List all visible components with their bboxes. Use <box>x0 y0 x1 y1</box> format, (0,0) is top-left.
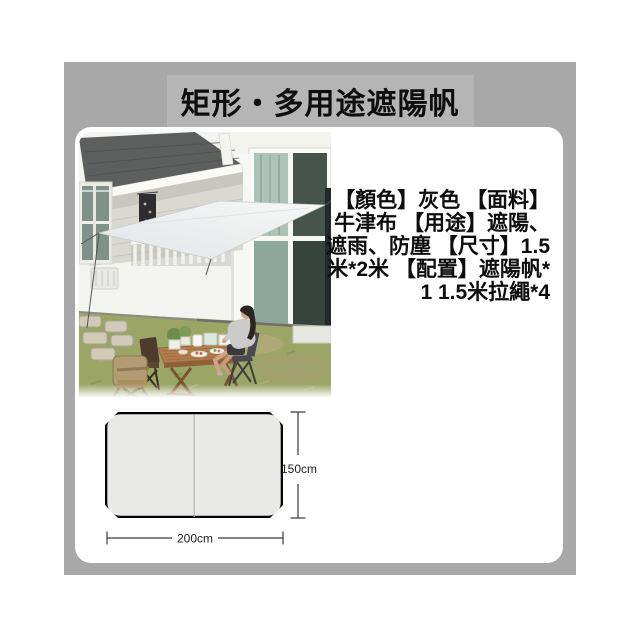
spec-line-1: 【顏色】灰色 【面料】 <box>324 189 550 212</box>
photo-illustration <box>79 132 331 398</box>
product-spec-text: 【顏色】灰色 【面料】 牛津布 【用途】遮陽、 遮雨、防塵 【尺寸】1.5 米*… <box>324 189 550 304</box>
spec-line-5: 1 1.5米拉繩*4 <box>324 281 550 304</box>
width-dimension-label: 200cm <box>177 532 213 546</box>
title-highlight-box: 矩形・多用途遮陽帆 <box>167 75 474 127</box>
gray-backdrop-panel: 矩形・多用途遮陽帆 <box>64 62 576 575</box>
product-title: 矩形・多用途遮陽帆 <box>181 88 460 121</box>
height-dimension-label: 150cm <box>281 462 317 476</box>
product-photo <box>79 132 331 398</box>
spec-line-2: 牛津布 【用途】遮陽、 <box>324 212 550 235</box>
product-card: 【顏色】灰色 【面料】 牛津布 【用途】遮陽、 遮雨、防塵 【尺寸】1.5 米*… <box>75 127 563 563</box>
size-diagram: 150cm 200cm <box>95 403 325 555</box>
spec-line-4: 米*2米 【配置】遮陽帆* <box>324 258 550 281</box>
spec-line-3: 遮雨、防塵 【尺寸】1.5 <box>324 235 550 258</box>
title-row: 矩形・多用途遮陽帆 <box>64 75 576 127</box>
